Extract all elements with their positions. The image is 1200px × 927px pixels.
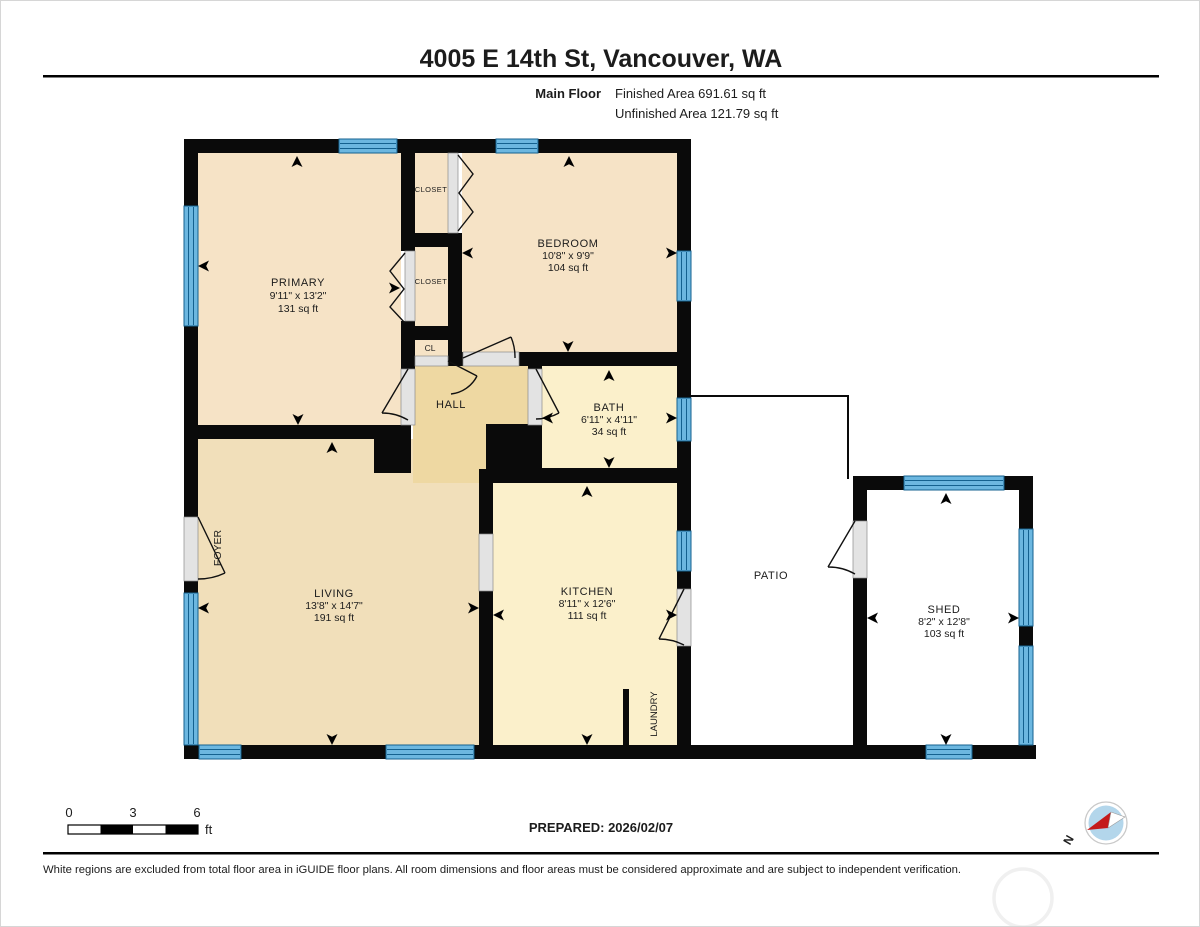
bath-area: 34 sq ft [592, 426, 627, 438]
compass-rose: N [1060, 802, 1127, 847]
page-title: 4005 E 14th St, Vancouver, WA [420, 45, 783, 73]
closet-small-opening [415, 356, 448, 366]
bedroom-area: 104 sq ft [548, 262, 588, 274]
unfinished-area-text: Unfinished Area 121.79 sq ft [615, 106, 779, 121]
footer-divider [43, 852, 1159, 855]
closet-top-label: CLOSET [415, 185, 447, 194]
prepared-date: PREPARED: 2026/02/07 [529, 820, 673, 835]
window-shed-right-upper [1019, 529, 1033, 626]
watermark-circle [994, 869, 1052, 927]
primary-area: 131 sq ft [278, 303, 318, 315]
scale-unit-label: ft [205, 822, 213, 837]
window-living-bottom-left [199, 745, 241, 759]
window-bedroom-top [496, 139, 538, 153]
bedroom-dims: 10'8" x 9'9" [542, 250, 594, 262]
window-living-left [184, 593, 198, 745]
shed-door-opening [853, 521, 867, 578]
shed-label: SHED [928, 604, 961, 616]
primary-dims: 9'11" x 13'2" [270, 290, 327, 302]
floor-plan-canvas: 4005 E 14th St, Vancouver, WA Main Floor… [1, 1, 1200, 927]
disclaimer-text: White regions are excluded from total fl… [43, 864, 961, 876]
closet-top-opening [448, 153, 458, 233]
closet-mid-floor [415, 247, 448, 326]
room-fills [198, 153, 1019, 745]
compass-north-label: N [1060, 833, 1076, 848]
hall-label: HALL [436, 399, 466, 411]
bath-label: BATH [594, 402, 625, 414]
closet-mid-opening [405, 251, 415, 321]
window-bedroom-right [677, 251, 691, 301]
laundry-label: LAUNDRY [649, 691, 660, 737]
living-dims: 13'8" x 14'7" [305, 600, 363, 612]
scale-tick-0: 0 [65, 805, 72, 820]
scale-tick-6: 6 [193, 805, 200, 820]
finished-area-text: Finished Area 691.61 sq ft [615, 86, 766, 101]
floor-label: Main Floor [535, 86, 601, 101]
bath-dims: 6'11" x 4'11" [581, 414, 637, 426]
window-primary-top [339, 139, 397, 153]
kitchen-passage-opening [479, 534, 493, 591]
patio-label: PATIO [754, 570, 788, 582]
window-kitchen-right [677, 531, 691, 571]
header-divider [43, 75, 1159, 78]
primary-floor [198, 153, 401, 425]
window-living-bottom-right [386, 745, 474, 759]
living-area: 191 sq ft [314, 612, 354, 624]
bedroom-label: BEDROOM [537, 238, 598, 250]
window-shed-top [904, 476, 1004, 490]
primary-label: PRIMARY [271, 277, 325, 289]
window-primary-left [184, 206, 198, 326]
kitchen-label: KITCHEN [561, 586, 613, 598]
kitchen-dims: 8'11" x 12'6" [559, 598, 616, 610]
living-label: LIVING [314, 588, 354, 600]
scale-tick-3: 3 [129, 805, 136, 820]
window-shed-right-lower [1019, 646, 1033, 745]
shed-dims: 8'2" x 12'8" [918, 616, 970, 628]
kitchen-area: 111 sq ft [568, 610, 607, 622]
shed-area: 103 sq ft [924, 628, 964, 640]
closet-mid-label: CLOSET [415, 277, 447, 286]
window-bath-right [677, 398, 691, 441]
scale-bar: 0 3 6 ft [65, 805, 212, 837]
foyer-label: FOYER [212, 529, 224, 566]
foyer-entry-opening [184, 517, 198, 581]
floor-plan-page: 4005 E 14th St, Vancouver, WA Main Floor… [0, 0, 1200, 927]
closet-small-label: CL [425, 343, 436, 353]
window-shed-bottom [926, 745, 972, 759]
